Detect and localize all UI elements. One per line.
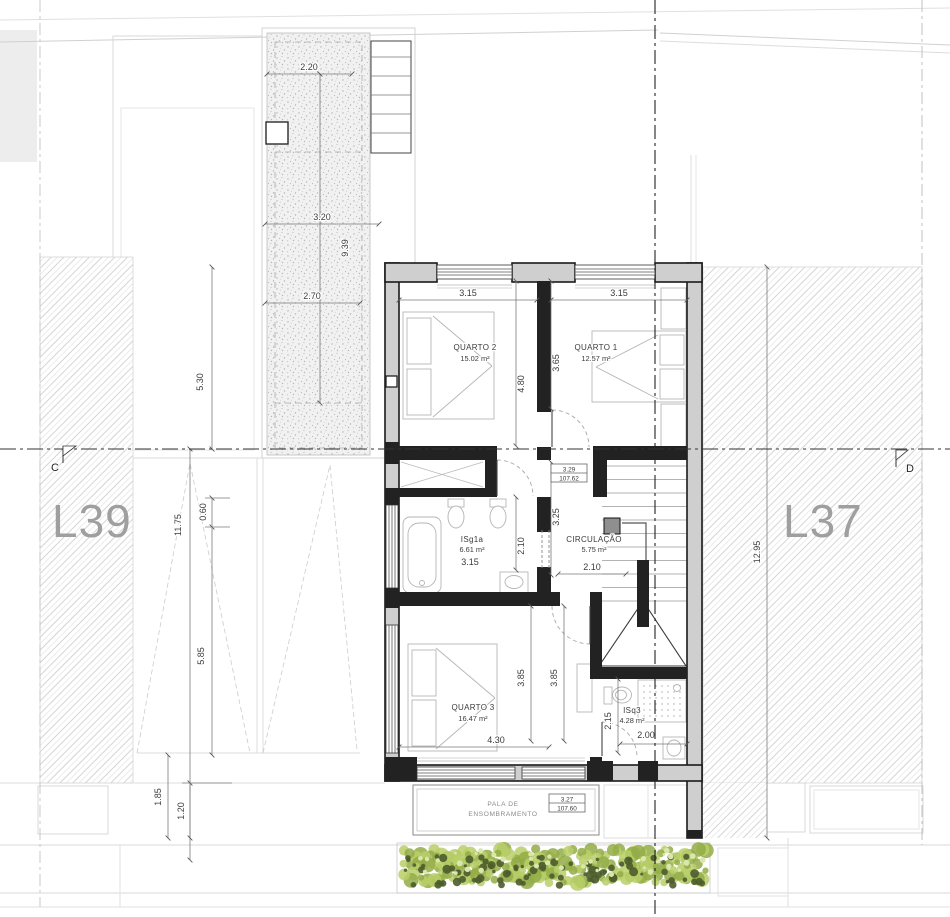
pillow bbox=[660, 335, 684, 365]
dim-isq3-width: 2.00 bbox=[637, 730, 655, 740]
wall-niche bbox=[386, 376, 397, 387]
dim-q1-depth: 3.65 bbox=[551, 354, 561, 372]
dim-isg1a-depth: 2.10 bbox=[516, 537, 526, 555]
dim-left-upper: 5.30 bbox=[195, 373, 205, 391]
room-area-circulacao: 5.75 m² bbox=[581, 545, 607, 554]
terrace-gravel bbox=[267, 33, 370, 455]
window-west-1 bbox=[386, 505, 398, 588]
dim-q3-depth-a: 3.85 bbox=[516, 669, 526, 687]
pier bbox=[512, 263, 575, 282]
dim-q2-width: 3.15 bbox=[459, 288, 477, 298]
lot-label-l37: L37 bbox=[783, 495, 863, 547]
toilet bbox=[604, 687, 612, 704]
pillow bbox=[412, 650, 436, 696]
room-name-quarto1: QUARTO 1 bbox=[574, 343, 617, 352]
room-area-quarto3: 16.47 m² bbox=[458, 714, 488, 723]
level-height-pala: 3.27 bbox=[561, 797, 574, 804]
room-name-quarto2: QUARTO 2 bbox=[453, 343, 496, 352]
dim-left-total: 11.75 bbox=[173, 514, 183, 536]
pillow bbox=[407, 369, 431, 415]
bed-quarto2 bbox=[403, 312, 494, 419]
dim-q3-width: 4.30 bbox=[487, 735, 505, 745]
level-elevation-pala: 107.60 bbox=[557, 806, 577, 813]
level-height-hall: 3.29 bbox=[563, 467, 576, 474]
dim-terrace-low: 2.70 bbox=[303, 291, 321, 301]
desk bbox=[577, 664, 592, 712]
room-area-isg1a: 6.61 m² bbox=[459, 545, 485, 554]
pier bbox=[655, 263, 702, 282]
dim-terrace-top: 2.20 bbox=[300, 62, 318, 72]
pillow bbox=[407, 318, 431, 364]
neighbor-structure-se2 bbox=[810, 786, 923, 833]
access-ladder bbox=[371, 41, 411, 153]
section-label-d: D bbox=[906, 463, 914, 475]
hedge-vegetation bbox=[398, 842, 713, 891]
dim-left-lower: 5.85 bbox=[196, 647, 206, 665]
dim-q2-depth: 4.80 bbox=[516, 375, 526, 393]
section-label-c: C bbox=[51, 462, 59, 474]
dim-terrace-mid: 3.20 bbox=[313, 212, 331, 222]
dim-left-b2: 1.20 bbox=[176, 802, 186, 820]
garden-trees bbox=[137, 463, 357, 753]
neighbor-structure-se3 bbox=[718, 848, 788, 896]
neighbor-structure-sw bbox=[38, 786, 108, 834]
neighbor-building-outline bbox=[113, 36, 262, 458]
room-area-quarto2: 15.02 m² bbox=[460, 354, 490, 363]
window-west-2 bbox=[386, 625, 398, 753]
neighbor-building-inner bbox=[121, 108, 254, 450]
room-name-circulacao: CIRCULAÇÃO bbox=[566, 535, 621, 544]
wall-east bbox=[687, 263, 702, 838]
street-strip bbox=[0, 30, 37, 162]
window-south-1 bbox=[417, 767, 515, 779]
room-name-quarto3: QUARTO 3 bbox=[451, 703, 494, 712]
room-area-isq3: 4.28 m² bbox=[619, 716, 645, 725]
room-name-isg1a: ISg1a bbox=[461, 535, 484, 544]
dim-hall-depth: 3.25 bbox=[551, 508, 561, 526]
pier bbox=[385, 263, 437, 282]
room-name-isq3: ISq3 bbox=[623, 706, 641, 715]
lot-label-l39: L39 bbox=[52, 495, 132, 547]
dim-circulacao-width: 2.10 bbox=[583, 562, 601, 572]
column bbox=[604, 518, 620, 534]
dim-terrace-vert: 9.39 bbox=[340, 239, 350, 257]
side-path-outline bbox=[604, 785, 687, 838]
room-area-quarto1: 12.57 m² bbox=[581, 354, 611, 363]
dim-left-b1: 1.85 bbox=[153, 788, 163, 806]
pillow bbox=[412, 700, 436, 746]
pala-label-line1: PALA DE bbox=[487, 801, 518, 808]
wardrobe bbox=[661, 288, 686, 329]
dim-right-total: 12.95 bbox=[752, 541, 762, 564]
chimney bbox=[266, 122, 288, 144]
dim-isg1a-width: 3.15 bbox=[461, 557, 479, 567]
floor-plan-drawing: L39 L37 bbox=[0, 0, 950, 917]
dim-q3-depth-b: 3.85 bbox=[549, 669, 559, 687]
level-marker-hall: 3.29 107.62 bbox=[551, 464, 587, 483]
dim-left-small: 0.60 bbox=[198, 503, 208, 521]
pillow bbox=[660, 369, 684, 399]
pala-label-line2: ENSOMBRAMENTO bbox=[468, 811, 537, 818]
window-south-2 bbox=[522, 767, 585, 779]
dim-q1-width: 3.15 bbox=[610, 288, 628, 298]
level-elevation-hall: 107.62 bbox=[559, 476, 579, 483]
dim-isq3-depth: 2.15 bbox=[603, 712, 613, 730]
level-marker-pala: 3.27 107.60 bbox=[549, 794, 585, 813]
